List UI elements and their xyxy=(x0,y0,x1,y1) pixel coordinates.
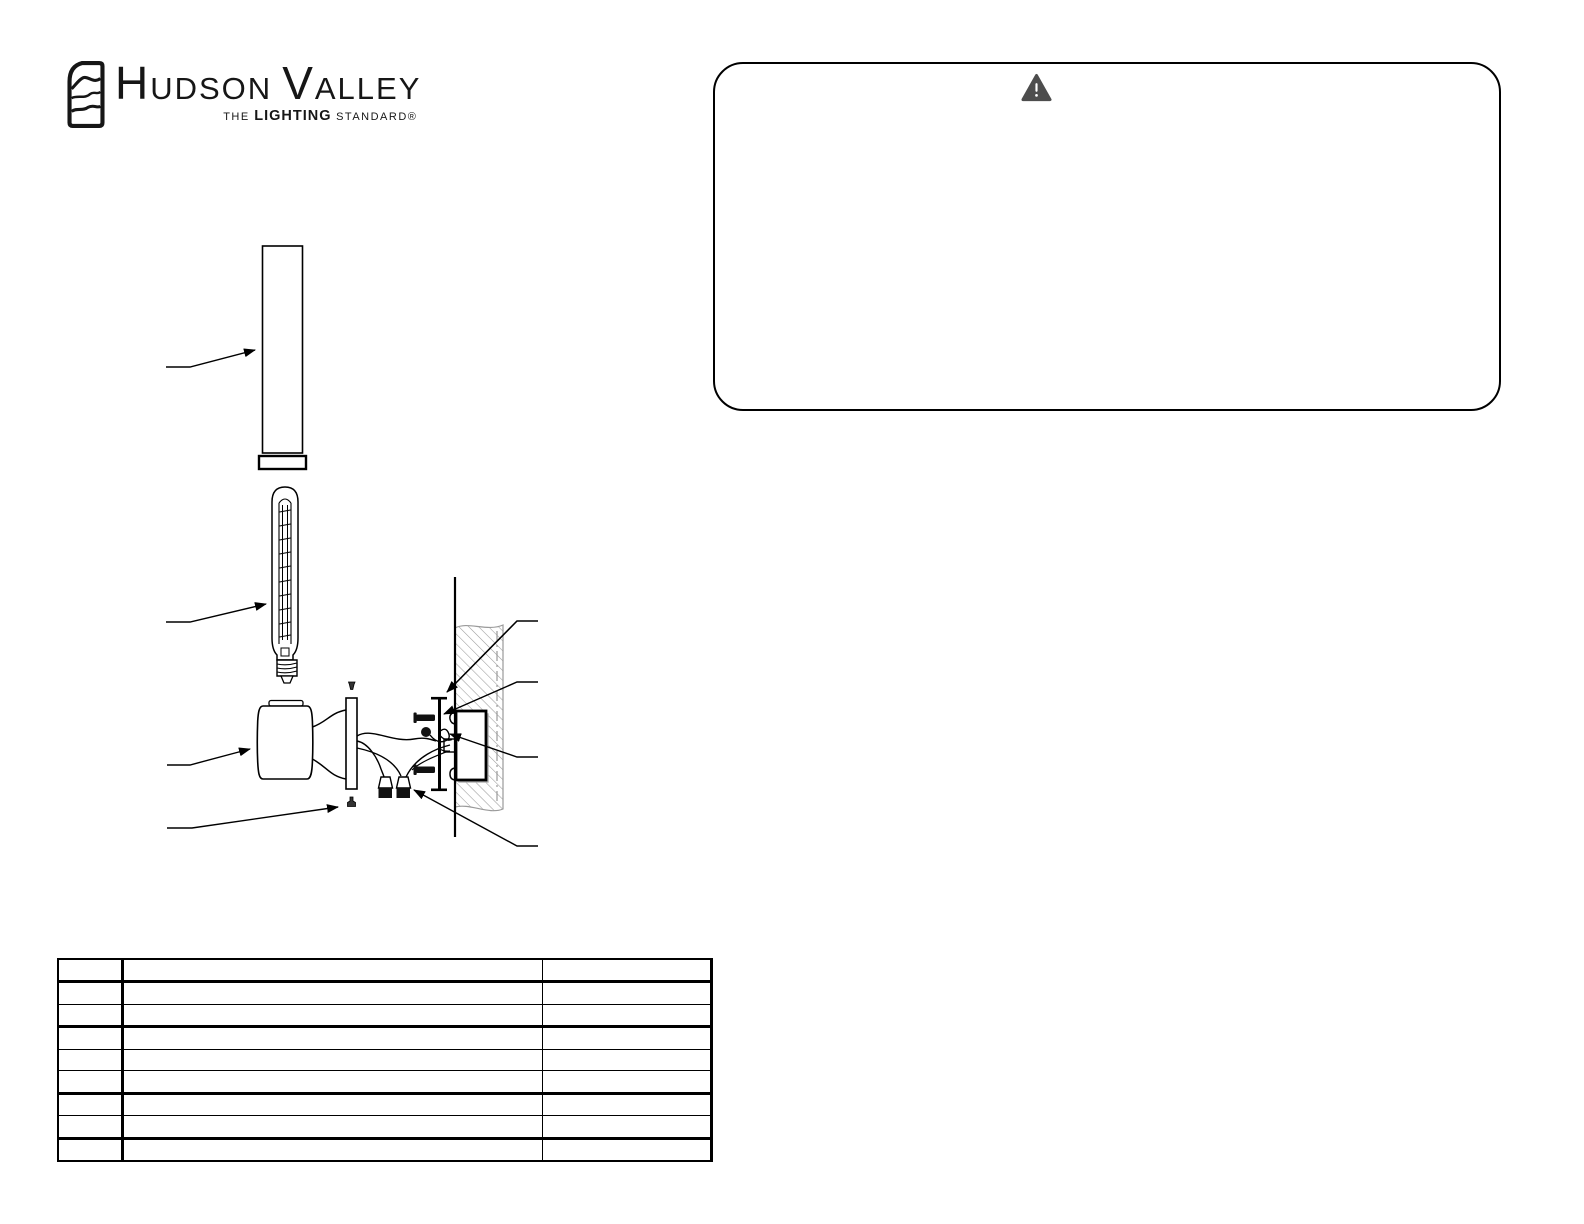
parts-table-cell xyxy=(59,1005,124,1025)
parts-table-row xyxy=(59,960,710,983)
parts-table-cell xyxy=(124,1028,543,1048)
parts-table-row xyxy=(59,1116,710,1139)
parts-table-cell xyxy=(543,1095,710,1115)
parts-table-cell xyxy=(543,1116,710,1136)
leader-fixture-body xyxy=(167,749,250,765)
canopy-screw-top xyxy=(349,682,356,690)
brand-logo-text: HUDSONVALLEY THE LIGHTING STANDARD® xyxy=(115,60,421,124)
socket-lip xyxy=(269,701,303,707)
parts-table-cell xyxy=(59,1116,124,1136)
bulb-screw-base xyxy=(277,660,297,683)
brand-logo: HUDSONVALLEY THE LIGHTING STANDARD® xyxy=(65,60,421,130)
parts-table-cell xyxy=(59,983,124,1003)
brand-wordmark: HUDSONVALLEY xyxy=(115,60,421,106)
warning-triangle-icon xyxy=(1021,73,1052,103)
leader-bulb xyxy=(166,604,266,622)
glass-shade-cylinder xyxy=(259,246,306,469)
installation-diagram xyxy=(150,230,550,860)
instruction-sheet-page: { "logo": { "word_part1": "H", "word_par… xyxy=(0,0,1584,1224)
parts-table-row xyxy=(59,1071,710,1094)
parts-table-cell xyxy=(543,983,710,1003)
canopy-screw-bottom xyxy=(348,797,356,807)
wire-connector-left xyxy=(379,788,393,798)
parts-table-row xyxy=(59,1095,710,1116)
parts-table-cell xyxy=(124,1095,543,1115)
parts-table-row xyxy=(59,1005,710,1028)
parts-table-cell xyxy=(543,1140,710,1160)
parts-table-cell xyxy=(124,1071,543,1091)
shade-retaining-collar xyxy=(259,456,306,469)
parts-table-cell xyxy=(543,1050,710,1070)
fixture-body xyxy=(257,698,357,789)
parts-table-cell xyxy=(59,1095,124,1115)
tubular-bulb xyxy=(272,487,298,683)
hudson-valley-logo-mark-icon xyxy=(65,60,107,130)
parts-table-row xyxy=(59,1028,710,1049)
parts-table-cell xyxy=(124,960,543,980)
parts-table-cell xyxy=(59,1071,124,1091)
warning-notice-box xyxy=(713,62,1501,411)
mounting-screw-bottom xyxy=(416,767,435,774)
parts-table-row xyxy=(59,1140,710,1160)
wire-connectors xyxy=(379,777,411,798)
parts-table-cell xyxy=(59,1050,124,1070)
parts-table-cell xyxy=(124,1005,543,1025)
parts-table-cell xyxy=(543,960,710,980)
parts-table-cell xyxy=(543,1071,710,1091)
parts-table-cell xyxy=(543,1028,710,1048)
parts-table-cell xyxy=(59,960,124,980)
leader-glass-shade xyxy=(166,350,255,367)
parts-table-cell xyxy=(124,1116,543,1136)
wire-connector-right xyxy=(397,788,411,798)
parts-table-cell xyxy=(124,1140,543,1160)
parts-table-row xyxy=(59,1050,710,1071)
mounting-screw-top xyxy=(416,715,435,722)
fixture-neck xyxy=(312,710,346,779)
outlet-box xyxy=(444,711,488,782)
parts-table-cell xyxy=(124,1050,543,1070)
brand-tagline: THE LIGHTING STANDARD® xyxy=(115,108,421,124)
parts-table-cell xyxy=(124,983,543,1003)
canopy-backplate xyxy=(346,698,357,789)
leader-canopy-screw xyxy=(167,807,338,828)
parts-table-cell xyxy=(543,1005,710,1025)
parts-table xyxy=(57,958,713,1162)
parts-table-row xyxy=(59,983,710,1004)
parts-table-cell xyxy=(59,1140,124,1160)
parts-table-cell xyxy=(59,1028,124,1048)
